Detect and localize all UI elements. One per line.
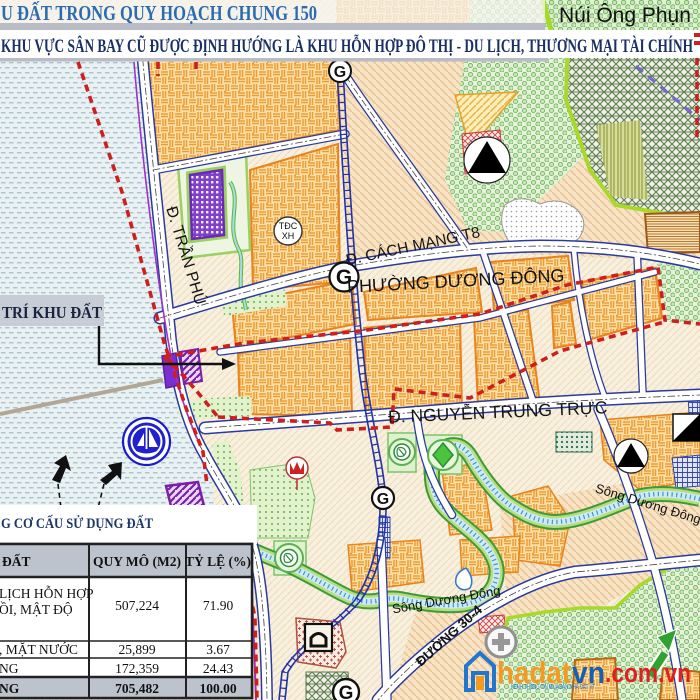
- svg-text:705,482: 705,482: [115, 681, 159, 696]
- svg-text:TRÍ KHU ĐẤT: TRÍ KHU ĐẤT: [2, 303, 103, 322]
- svg-text:LỊCH HỖN HỢP: LỊCH HỖN HỢP: [0, 586, 94, 601]
- svg-text:Núi Ông Phụn: Núi Ông Phụn: [559, 4, 691, 27]
- svg-text:ĐẤT: ĐẤT: [2, 554, 31, 569]
- svg-text:G CƠ CẤU SỬ DỤNG ĐẤT: G CƠ CẤU SỬ DỤNG ĐẤT: [1, 515, 153, 532]
- svg-text:TĐC: TĐC: [279, 221, 298, 231]
- svg-text:NG: NG: [0, 661, 19, 676]
- svg-text:KHU VỰC SÂN BAY CŨ ĐƯỢC ĐỊNH H: KHU VỰC SÂN BAY CŨ ĐƯỢC ĐỊNH HƯỚNG LÀ KH…: [1, 35, 693, 57]
- svg-text:NG: NG: [0, 681, 20, 696]
- svg-text:172,359: 172,359: [115, 661, 159, 676]
- svg-text:, MẶT NƯỚC: , MẶT NƯỚC: [0, 642, 78, 657]
- svg-text:100.00: 100.00: [199, 681, 236, 696]
- svg-text:3.67: 3.67: [206, 642, 230, 657]
- svg-text:TỶ LỆ (%): TỶ LỆ (%): [185, 554, 251, 569]
- svg-text:G: G: [339, 683, 354, 700]
- svg-text:G: G: [377, 491, 389, 508]
- svg-text:507,224: 507,224: [115, 598, 159, 613]
- svg-text:ỒI, MẬT ĐỘ: ỒI, MẬT ĐỘ: [0, 602, 73, 617]
- svg-text:71.90: 71.90: [203, 598, 234, 613]
- svg-text:25,899: 25,899: [118, 642, 155, 657]
- svg-text:XH: XH: [282, 231, 295, 241]
- svg-text:QUY MÔ (M2): QUY MÔ (M2): [93, 554, 181, 569]
- svg-text:G: G: [334, 64, 346, 81]
- svg-text:.com.vn: .com.vn: [605, 658, 691, 688]
- svg-text:24.43: 24.43: [203, 661, 234, 676]
- svg-text:U ĐẤT TRONG QUY HOẠCH CHUNG 15: U ĐẤT TRONG QUY HOẠCH CHUNG 150: [1, 1, 317, 25]
